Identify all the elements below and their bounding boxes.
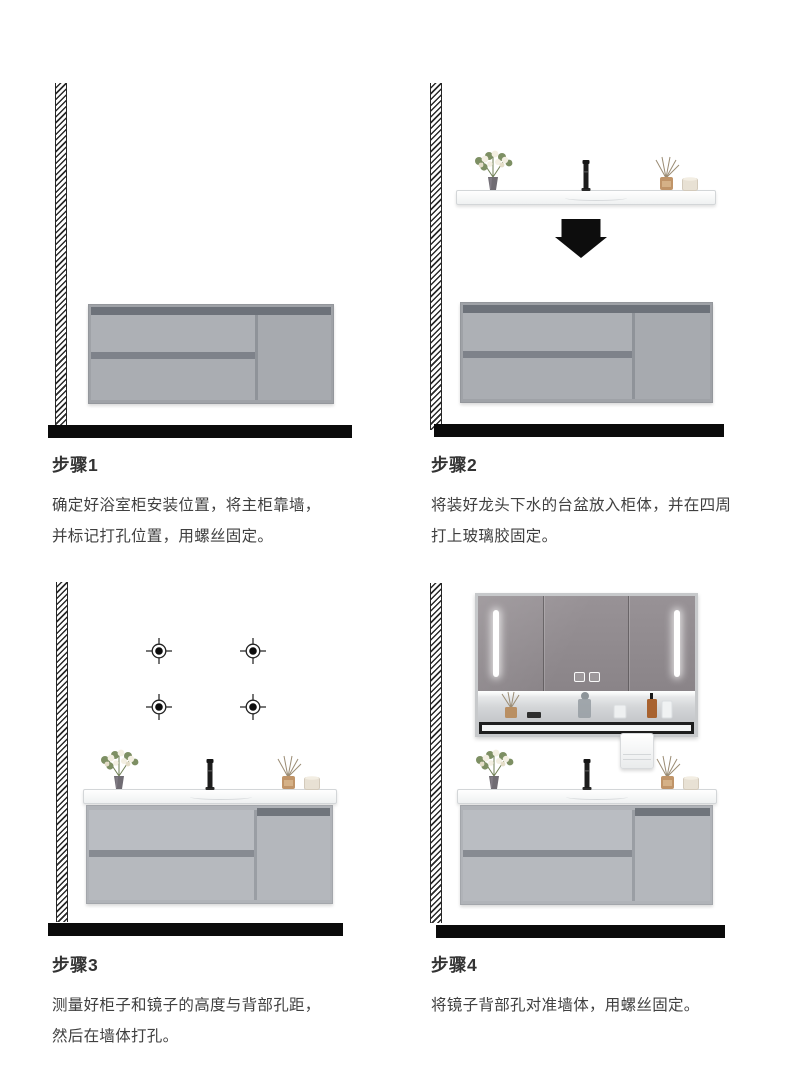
plant-icon bbox=[470, 746, 518, 790]
step-description-line: 测量好柜子和镜子的高度与背部孔距， bbox=[52, 990, 392, 1021]
step-caption: 步骤4 将镜子背部孔对准墙体，用螺丝固定。 bbox=[431, 952, 776, 1021]
drawer-upper bbox=[89, 810, 256, 850]
plant-icon bbox=[95, 746, 143, 790]
drawer-handle-recess bbox=[463, 850, 634, 857]
vanity-cabinet bbox=[460, 302, 713, 403]
mirror-door-seam bbox=[543, 596, 544, 691]
step-description-line: 将镜子背部孔对准墙体，用螺丝固定。 bbox=[431, 990, 776, 1021]
drawer-lower bbox=[463, 358, 634, 399]
cabinet-top-recess bbox=[91, 307, 331, 315]
step-title: 步骤3 bbox=[52, 952, 392, 977]
candle-icon bbox=[683, 775, 700, 790]
wall-hatch bbox=[56, 582, 68, 922]
cabinet-door bbox=[635, 313, 710, 399]
instruction-sheet: 步骤1 确定好浴室柜安装位置，将主柜靠墙， 并标记打孔位置，用螺丝固定。 bbox=[0, 0, 790, 1066]
towel-icon bbox=[620, 733, 654, 769]
drawer-handle-recess bbox=[463, 351, 634, 358]
glass-bottle-icon bbox=[578, 699, 591, 718]
drawer-stack bbox=[91, 315, 257, 400]
led-strip-icon bbox=[674, 610, 680, 677]
plant-icon bbox=[469, 147, 517, 191]
faucet-icon bbox=[580, 758, 595, 790]
vanity-cabinet bbox=[460, 805, 713, 905]
countertop bbox=[457, 789, 717, 804]
floor-line bbox=[48, 425, 352, 438]
basin-outline bbox=[190, 794, 252, 800]
drawer-lower bbox=[463, 857, 634, 901]
drawer-lower bbox=[91, 359, 257, 400]
step-caption: 步骤2 将装好龙头下水的台盆放入柜体，并在四周 打上玻璃胶固定。 bbox=[431, 452, 776, 552]
drill-mark-icon bbox=[146, 694, 172, 720]
cabinet-top-recess bbox=[635, 808, 710, 816]
candle-icon bbox=[682, 176, 699, 191]
faucet-icon bbox=[203, 758, 218, 790]
floor-line bbox=[48, 923, 343, 936]
cabinet-door bbox=[257, 816, 330, 900]
reed-diffuser-icon bbox=[650, 155, 682, 191]
touch-controls-icon bbox=[574, 672, 600, 682]
cabinet-door bbox=[258, 315, 331, 400]
arrow-down-icon bbox=[555, 219, 607, 258]
drawer-upper bbox=[463, 810, 634, 850]
mirror-doors bbox=[478, 596, 695, 691]
drawer-upper bbox=[91, 315, 257, 352]
drawer-stack bbox=[89, 810, 256, 900]
shelf-items bbox=[481, 690, 692, 719]
basin-outline bbox=[566, 794, 628, 800]
mirror-shelf bbox=[478, 691, 695, 720]
step-description-line: 然后在墙体打孔。 bbox=[52, 1021, 392, 1052]
drawer-handle-recess bbox=[91, 352, 257, 359]
floor-line bbox=[436, 925, 725, 938]
drawer-upper bbox=[463, 313, 634, 351]
amber-bottle-icon bbox=[647, 699, 657, 718]
reed-diffuser-icon bbox=[651, 754, 683, 790]
towel-bar bbox=[479, 722, 694, 734]
wall-hatch bbox=[55, 83, 67, 426]
led-strip-icon bbox=[493, 610, 499, 677]
drill-mark-icon bbox=[240, 694, 266, 720]
step-title: 步骤4 bbox=[431, 952, 776, 977]
cabinet-door bbox=[635, 816, 710, 901]
candle-icon bbox=[614, 705, 626, 718]
step-title: 步骤1 bbox=[52, 452, 392, 477]
step-caption: 步骤3 测量好柜子和镜子的高度与背部孔距， 然后在墙体打孔。 bbox=[52, 952, 392, 1052]
white-bottle-icon bbox=[662, 701, 672, 718]
floor-line bbox=[434, 424, 724, 437]
vanity-cabinet bbox=[88, 304, 334, 404]
drill-mark-icon bbox=[146, 638, 172, 664]
step-description-line: 打上玻璃胶固定。 bbox=[431, 521, 776, 552]
step-description-line: 并标记打孔位置，用螺丝固定。 bbox=[52, 521, 392, 552]
drawer-stack bbox=[463, 313, 634, 399]
step-caption: 步骤1 确定好浴室柜安装位置，将主柜靠墙， 并标记打孔位置，用螺丝固定。 bbox=[52, 452, 392, 552]
drawer-handle-recess bbox=[89, 850, 256, 857]
drawer-lower bbox=[89, 857, 256, 900]
countertop bbox=[456, 190, 716, 205]
cabinet-top-recess bbox=[257, 808, 330, 816]
step-description-line: 确定好浴室柜安装位置，将主柜靠墙， bbox=[52, 490, 392, 521]
vanity-cabinet bbox=[86, 805, 333, 904]
mirror-cabinet bbox=[475, 593, 698, 737]
faucet-icon bbox=[579, 159, 594, 191]
step-description-line: 将装好龙头下水的台盆放入柜体，并在四周 bbox=[431, 490, 776, 521]
cabinet-top-recess bbox=[463, 305, 710, 313]
step-title: 步骤2 bbox=[431, 452, 776, 477]
mirror-door-seam bbox=[628, 596, 629, 691]
reed-diffuser-icon bbox=[505, 707, 517, 718]
wall-hatch bbox=[430, 583, 442, 923]
black-box-icon bbox=[527, 712, 541, 718]
reed-diffuser-icon bbox=[272, 754, 304, 790]
drill-mark-icon bbox=[240, 638, 266, 664]
drawer-stack bbox=[463, 810, 634, 901]
wall-hatch bbox=[430, 83, 442, 430]
basin-outline bbox=[565, 195, 627, 201]
countertop bbox=[83, 789, 337, 804]
candle-icon bbox=[304, 775, 321, 790]
